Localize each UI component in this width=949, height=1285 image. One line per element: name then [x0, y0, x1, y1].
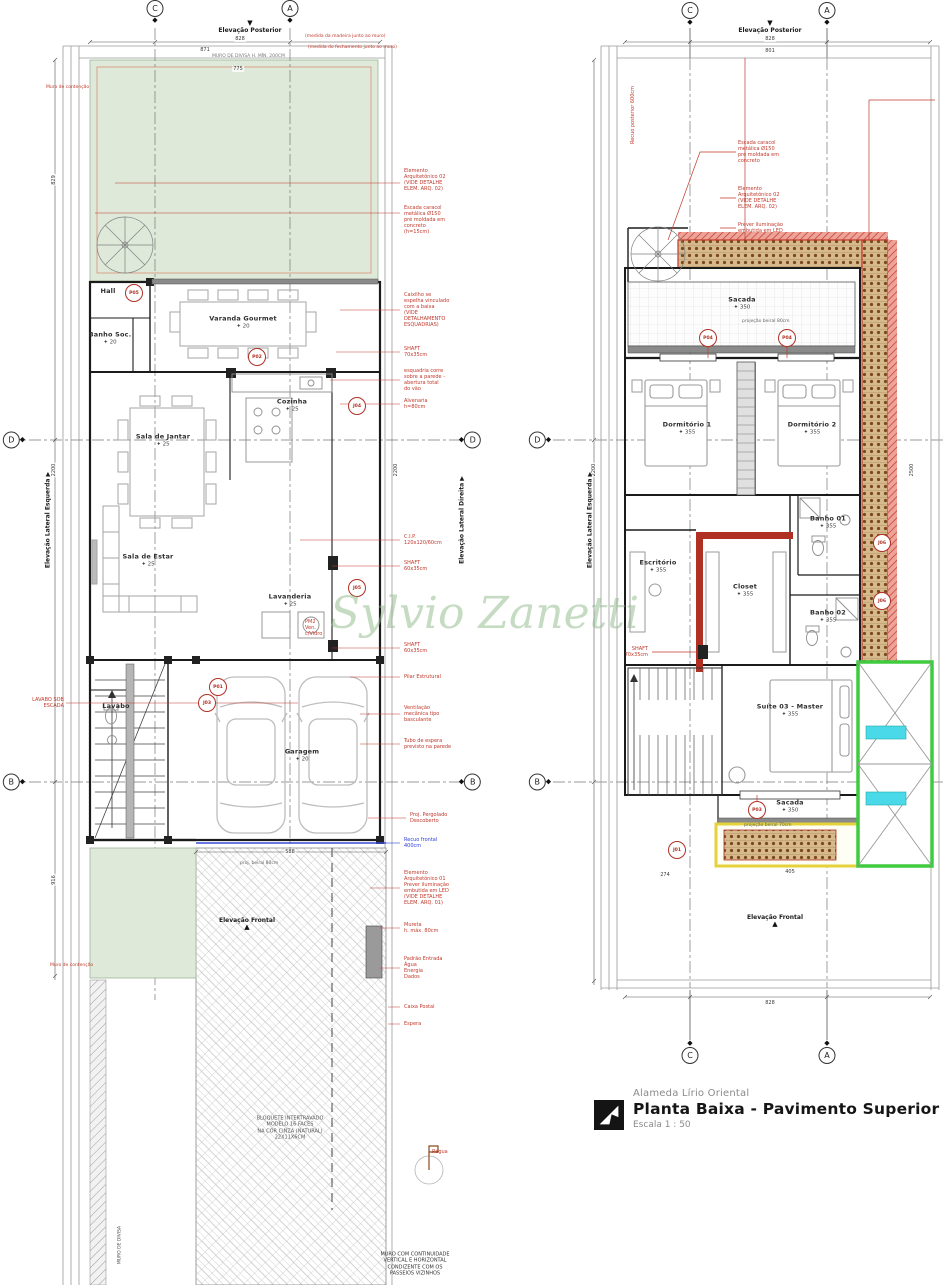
drawing-scale: Escala 1 : 50 [633, 1120, 939, 1130]
blueprint-sheet: HallBanho Soc.✦ 20Varanda Gourmet✦ 20Sal… [0, 0, 949, 1285]
title-block-text: Alameda Lírio Oriental Planta Baixa - Pa… [633, 1088, 939, 1130]
project-name: Alameda Lírio Oriental [633, 1088, 939, 1099]
drawing-title: Planta Baixa - Pavimento Superior [633, 1100, 939, 1118]
title-block: Alameda Lírio Oriental Planta Baixa - Pa… [594, 1088, 939, 1130]
watermark: Sylvio Zanetti [330, 588, 639, 639]
logo-icon [594, 1100, 624, 1130]
